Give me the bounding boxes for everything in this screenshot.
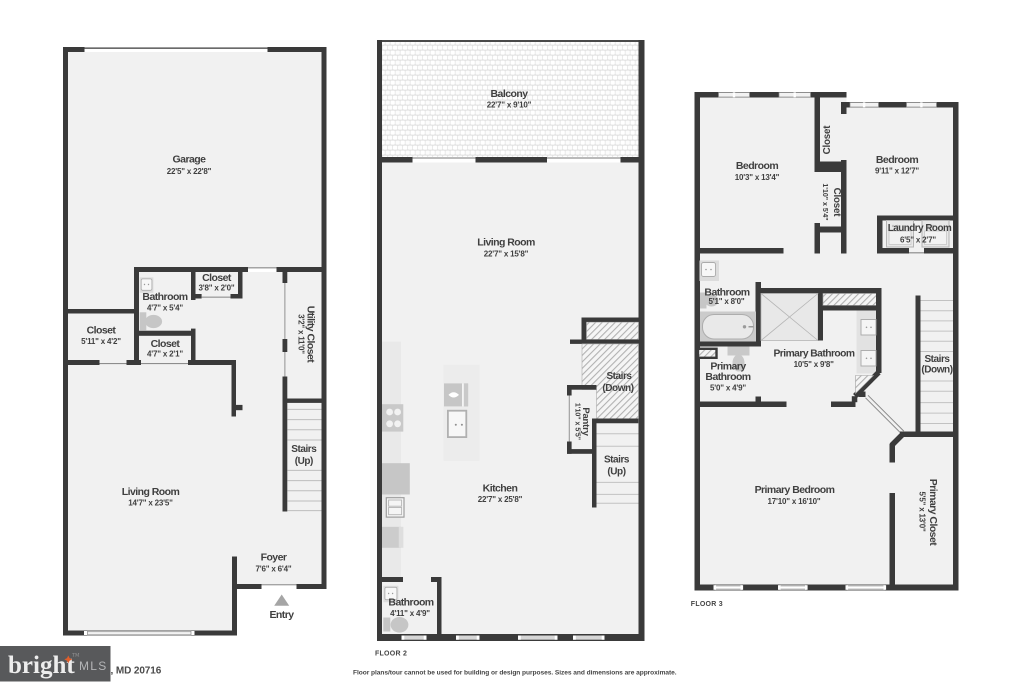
svg-text:Bathroom: Bathroom [388,597,433,609]
svg-text:9'11" x 12'7": 9'11" x 12'7" [875,167,919,176]
svg-text:Entry: Entry [269,609,294,621]
svg-text:Stairs: Stairs [606,371,632,382]
svg-text:FLOOR 2: FLOOR 2 [375,650,407,657]
svg-text:1'10" x 5'4": 1'10" x 5'4" [821,183,828,220]
svg-text:Garage: Garage [173,154,207,166]
svg-text:1'10" x 5'5": 1'10" x 5'5" [574,403,581,440]
svg-text:22'7" x 25'8": 22'7" x 25'8" [478,495,523,504]
svg-text:3'2" x 11'0": 3'2" x 11'0" [297,314,306,354]
svg-text:FLOOR 3: FLOOR 3 [691,601,723,608]
svg-text:5'5" x 13'0": 5'5" x 13'0" [917,491,926,532]
svg-text:Living Room: Living Room [122,486,180,498]
svg-text:Closet: Closet [822,125,833,155]
svg-text:Bedroom: Bedroom [736,160,778,172]
svg-text:Primary Closet: Primary Closet [927,479,939,546]
svg-text:(Up): (Up) [607,467,625,478]
svg-text:4'7" x 5'4": 4'7" x 5'4" [147,304,183,313]
svg-text:5'11" x 4'2": 5'11" x 4'2" [81,337,121,346]
svg-text:5'1" x 8'0": 5'1" x 8'0" [709,297,745,306]
svg-text:10'5" x 9'8": 10'5" x 9'8" [794,360,835,369]
svg-text:Closet: Closet [151,338,181,350]
svg-text:14'7" x 23'5": 14'7" x 23'5" [128,499,173,508]
svg-text:Kitchen: Kitchen [483,483,518,495]
svg-text:22'7" x 15'8": 22'7" x 15'8" [484,250,529,259]
svg-text:, MD 20716: , MD 20716 [111,666,162,677]
svg-text:Closet: Closet [202,272,232,284]
svg-text:7'6" x 6'4": 7'6" x 6'4" [256,565,292,574]
svg-text:22'5" x 22'8": 22'5" x 22'8" [167,167,212,176]
svg-text:Foyer: Foyer [261,552,287,564]
svg-text:TM: TM [72,654,80,659]
svg-text:4'7" x 2'1": 4'7" x 2'1" [147,350,183,359]
svg-text:4'11" x 4'9": 4'11" x 4'9" [390,609,430,618]
svg-text:3'8" x 2'0": 3'8" x 2'0" [199,284,235,293]
svg-text:Stairs: Stairs [604,455,630,466]
svg-text:10'3" x 13'4": 10'3" x 13'4" [735,173,780,182]
svg-text:5'0" x 4'9": 5'0" x 4'9" [710,384,746,393]
svg-text:Stairs: Stairs [291,444,317,455]
svg-text:Floor plans/tour cannot be use: Floor plans/tour cannot be used for buil… [353,670,677,677]
svg-text:(Down): (Down) [921,365,952,376]
svg-text:22'7" x 9'10": 22'7" x 9'10" [487,101,532,110]
svg-text:(Down): (Down) [602,383,633,394]
svg-text:bright: bright [8,652,75,679]
svg-text:(Up): (Up) [295,456,313,467]
svg-text:MLS: MLS [79,659,108,673]
svg-text:Bathroom: Bathroom [142,291,187,303]
svg-text:Laundry Room: Laundry Room [888,222,952,234]
svg-text:Primary Bathroom: Primary Bathroom [774,348,855,360]
svg-text:Bedroom: Bedroom [876,154,918,166]
svg-text:6'5" x 2'7": 6'5" x 2'7" [900,236,936,245]
svg-text:Bathroom: Bathroom [705,371,750,383]
svg-text:Stairs: Stairs [924,354,950,365]
svg-text:Primary Bedroom: Primary Bedroom [755,484,835,496]
svg-text:Pantry: Pantry [580,407,591,436]
svg-text:Living Room: Living Room [477,237,535,249]
svg-text:Closet: Closet [87,325,117,337]
svg-text:Balcony: Balcony [491,88,529,100]
svg-text:17'10" x 16'10": 17'10" x 16'10" [768,497,821,506]
svg-text:Closet: Closet [831,188,842,218]
